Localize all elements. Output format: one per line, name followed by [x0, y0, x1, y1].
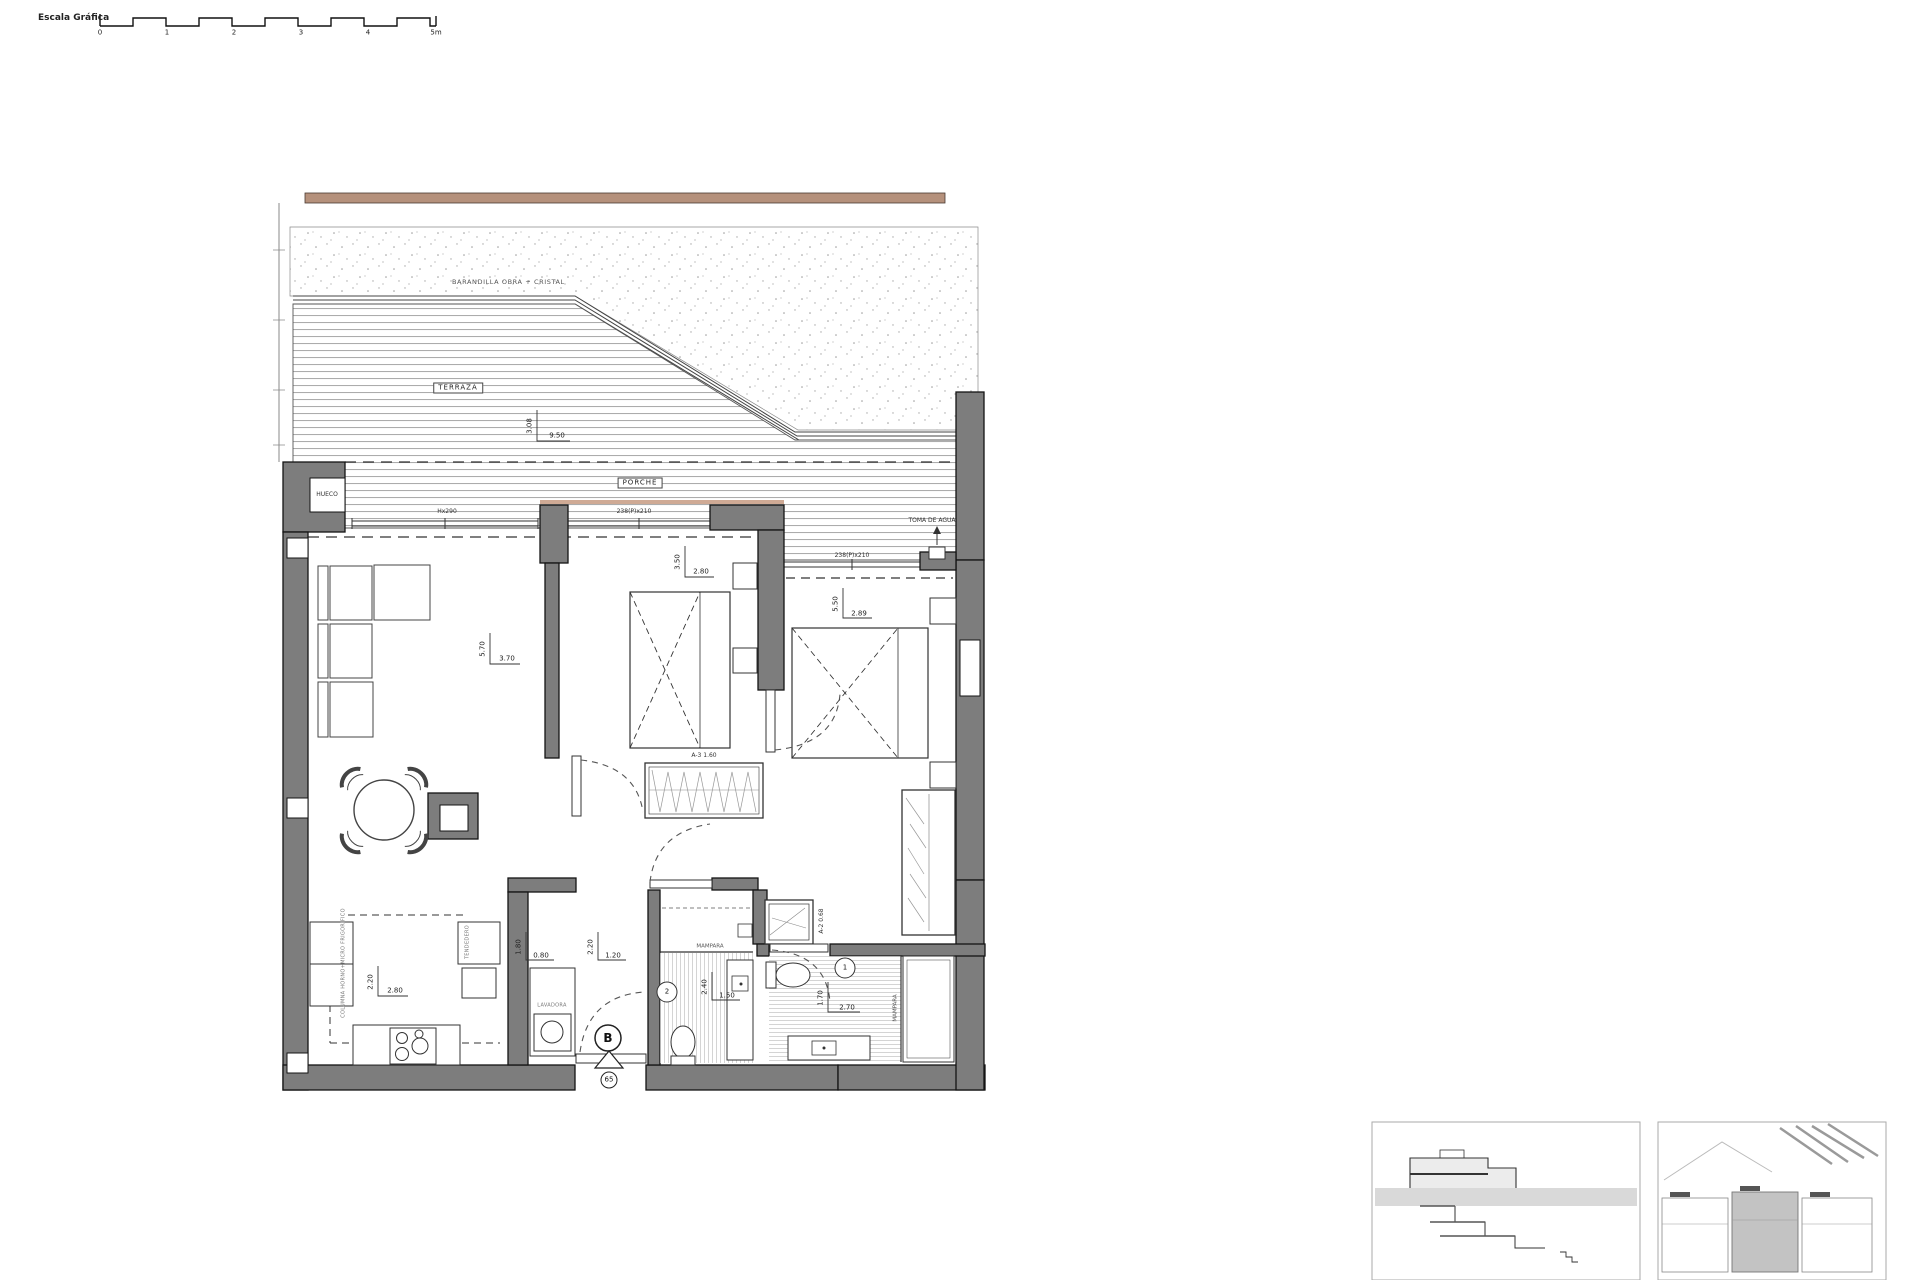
entrance-letter: B — [603, 1032, 612, 1044]
bed2-window-label: 238(P)x210 — [835, 553, 870, 559]
sofa — [318, 565, 430, 737]
floor-plan-linework — [0, 0, 1920, 1280]
dim-bath1-v: 1.70 — [818, 990, 825, 1006]
dim-living-v: 5.70 — [480, 641, 487, 657]
dim-bed1-h: 2.80 — [693, 569, 709, 576]
dim-bath2-v: 2.40 — [702, 979, 709, 995]
scale-tick-3: 3 — [299, 30, 303, 37]
bed-2 — [792, 598, 956, 788]
dim-hall-h: 1.20 — [605, 953, 621, 960]
dim-living-h: 3.70 — [499, 656, 515, 663]
washer-label: LAVADORA — [537, 1004, 566, 1009]
toilet-2 — [671, 1026, 695, 1065]
kitchen-right-label: TENDEDERO — [466, 925, 471, 959]
mampara-bath1-label: MAMPARA — [893, 994, 899, 1021]
siteplan-thumbnail — [1658, 1122, 1886, 1280]
dim-bed2-v: 5.50 — [833, 596, 840, 612]
dim-laundry-h: 0.80 — [533, 953, 549, 960]
scale-tick-5: 5m — [430, 30, 441, 37]
mampara-bath2-label: MAMPARA — [696, 944, 723, 950]
dining-table — [337, 764, 430, 856]
dim-bath2-h: 1.50 — [719, 993, 735, 1000]
bath1-number: 1 — [843, 965, 847, 972]
dim-hall-v: 2.20 — [588, 939, 595, 955]
laundry-closet — [530, 968, 575, 1056]
railing-label: BARANDILLA OBRA + CRISTAL — [452, 279, 565, 286]
scale-tick-4: 4 — [366, 30, 370, 37]
dim-bed1-v: 3.50 — [675, 554, 682, 570]
dim-kitchen-h: 2.80 — [387, 988, 403, 995]
scale-bar — [100, 14, 436, 26]
bathroom-1 — [766, 956, 954, 1062]
terrace-label: TERRAZA — [433, 383, 483, 394]
bathtub — [903, 956, 954, 1062]
floorplan-sheet: Escala Gráfica 0 1 2 3 4 5m BARANDILLA O… — [0, 0, 1920, 1280]
wardrobe-a3 — [645, 763, 763, 818]
scale-tick-0: 0 — [98, 30, 102, 37]
coping-strip — [305, 193, 945, 203]
washing-machine — [534, 1014, 571, 1051]
water-intake-label: TOMA DE AGUA — [908, 518, 955, 524]
property-line — [273, 203, 285, 462]
scale-tick-2: 2 — [232, 30, 236, 37]
dim-terrace-v: 3.08 — [527, 418, 534, 434]
living-window-label: Hx290 — [437, 509, 457, 515]
dim-kitchen-v: 2.20 — [368, 974, 375, 990]
scale-bar-title: Escala Gráfica — [38, 14, 109, 23]
bed-1 — [630, 563, 757, 748]
dim-terrace-h: 9.50 — [549, 433, 565, 440]
wardrobe-a1 — [902, 790, 955, 935]
closet-a2 — [765, 900, 813, 944]
porch-label: PORCHE — [618, 478, 663, 489]
vanity-2 — [727, 960, 753, 1060]
section-thumbnail — [1372, 1122, 1640, 1280]
hueco-label: HUECO — [316, 492, 338, 498]
entrance-number: 65 — [605, 1077, 614, 1084]
closet-a2-label: A-2 0.68 — [819, 908, 825, 933]
dim-bath1-h: 2.70 — [839, 1005, 855, 1012]
cooktop — [390, 1028, 436, 1064]
dim-laundry-v: 1.80 — [516, 939, 523, 955]
scale-tick-1: 1 — [165, 30, 169, 37]
bed1-window-label: 238(P)x210 — [617, 509, 652, 515]
dim-bed2-h: 2.89 — [851, 611, 867, 618]
closet-a3-label: A-3 1.60 — [691, 753, 716, 759]
bath2-number: 2 — [665, 989, 669, 996]
kitchen-column-label: COLUMNA HORNO+MICRO FRIGORIFICO — [342, 908, 347, 1018]
toilet-1 — [766, 962, 810, 988]
